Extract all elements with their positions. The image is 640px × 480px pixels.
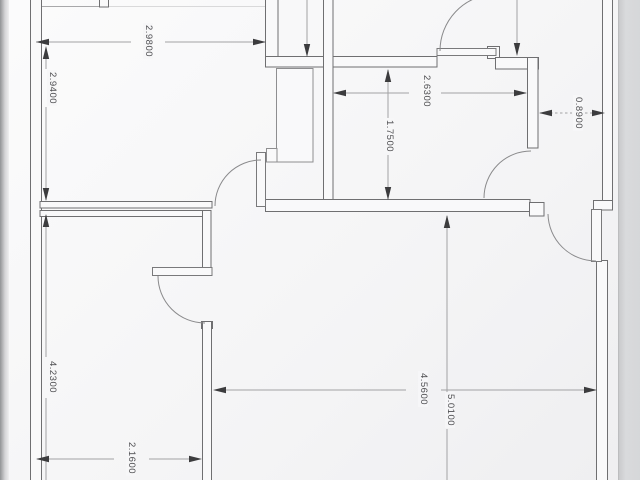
arrow-up bbox=[444, 215, 450, 228]
door-arc-bathroom bbox=[484, 151, 531, 198]
arrow-left bbox=[333, 90, 346, 96]
dim-label-4-5600: 4.5600 bbox=[418, 371, 428, 407]
arrow-down bbox=[43, 188, 49, 201]
arrow-down bbox=[385, 187, 391, 200]
door-arc-entry bbox=[548, 214, 596, 261]
wall-left-exterior bbox=[31, 0, 42, 480]
closet-fixture bbox=[267, 69, 314, 163]
dim-label-2-6300: 2.6300 bbox=[421, 73, 431, 109]
arrow-up bbox=[43, 46, 49, 59]
door-jamb-bathroom bbox=[530, 203, 545, 217]
door-leaf-entry bbox=[592, 210, 602, 262]
door-arc-lowerleft-room bbox=[158, 276, 205, 323]
wall-bathroom-right bbox=[528, 58, 539, 149]
door-arc-top bbox=[440, 0, 494, 51]
dimension-arrows bbox=[36, 39, 605, 462]
door-arcs bbox=[158, 0, 596, 323]
arrow-down bbox=[304, 44, 310, 57]
wall-stub-top bbox=[100, 0, 109, 7]
wall-lowerleft-right-upper bbox=[203, 211, 212, 269]
door-leaf-topleft-room bbox=[257, 153, 266, 207]
exterior-walls bbox=[31, 0, 613, 480]
entry-door-jamb-step bbox=[594, 201, 613, 211]
dim-label-2-1600: 2.1600 bbox=[126, 440, 136, 476]
wall-middle-lower bbox=[40, 211, 207, 217]
wall-right-exterior-upper bbox=[603, 0, 613, 206]
arrow-right bbox=[514, 90, 527, 96]
wall-bathroom-left bbox=[324, 0, 334, 203]
arrow-down bbox=[514, 43, 520, 56]
wall-bathroom-bottom bbox=[266, 200, 531, 212]
arrow-right bbox=[253, 39, 266, 45]
dim-label-0-8900: 0.8900 bbox=[573, 95, 583, 131]
dim-label-4-2300: 4.2300 bbox=[47, 359, 57, 395]
dimension-lines bbox=[36, 0, 603, 480]
wall-bathroom-top-left-segment bbox=[266, 57, 438, 68]
dim-label-2-9400: 2.9400 bbox=[47, 70, 57, 106]
closet-box bbox=[277, 69, 314, 163]
door-leaf-lowerleft-room bbox=[153, 268, 213, 276]
floor-plan-page: 2.9800 2.9400 2.6300 1.7500 0.8900 4.230… bbox=[0, 0, 640, 480]
wall-mid-vertical-top bbox=[266, 0, 279, 58]
wall-right-exterior-lower bbox=[597, 261, 608, 480]
door-arc-topleft-room bbox=[215, 160, 261, 206]
closet-notch bbox=[267, 149, 278, 163]
arrow-up bbox=[385, 69, 391, 82]
arrow-right bbox=[189, 456, 202, 462]
wall-lowerleft-right-lower bbox=[203, 322, 212, 480]
arrow-left bbox=[539, 110, 552, 116]
arrow-left bbox=[213, 387, 226, 393]
door-leaf-top bbox=[437, 49, 496, 56]
dim-label-1-7500: 1.7500 bbox=[384, 118, 394, 154]
dim-label-2-9800: 2.9800 bbox=[143, 23, 153, 59]
dim-label-5-0100: 5.0100 bbox=[445, 392, 455, 428]
wall-middle-upper bbox=[40, 202, 212, 209]
floor-plan-drawing bbox=[0, 0, 640, 480]
arrow-right bbox=[584, 387, 597, 393]
